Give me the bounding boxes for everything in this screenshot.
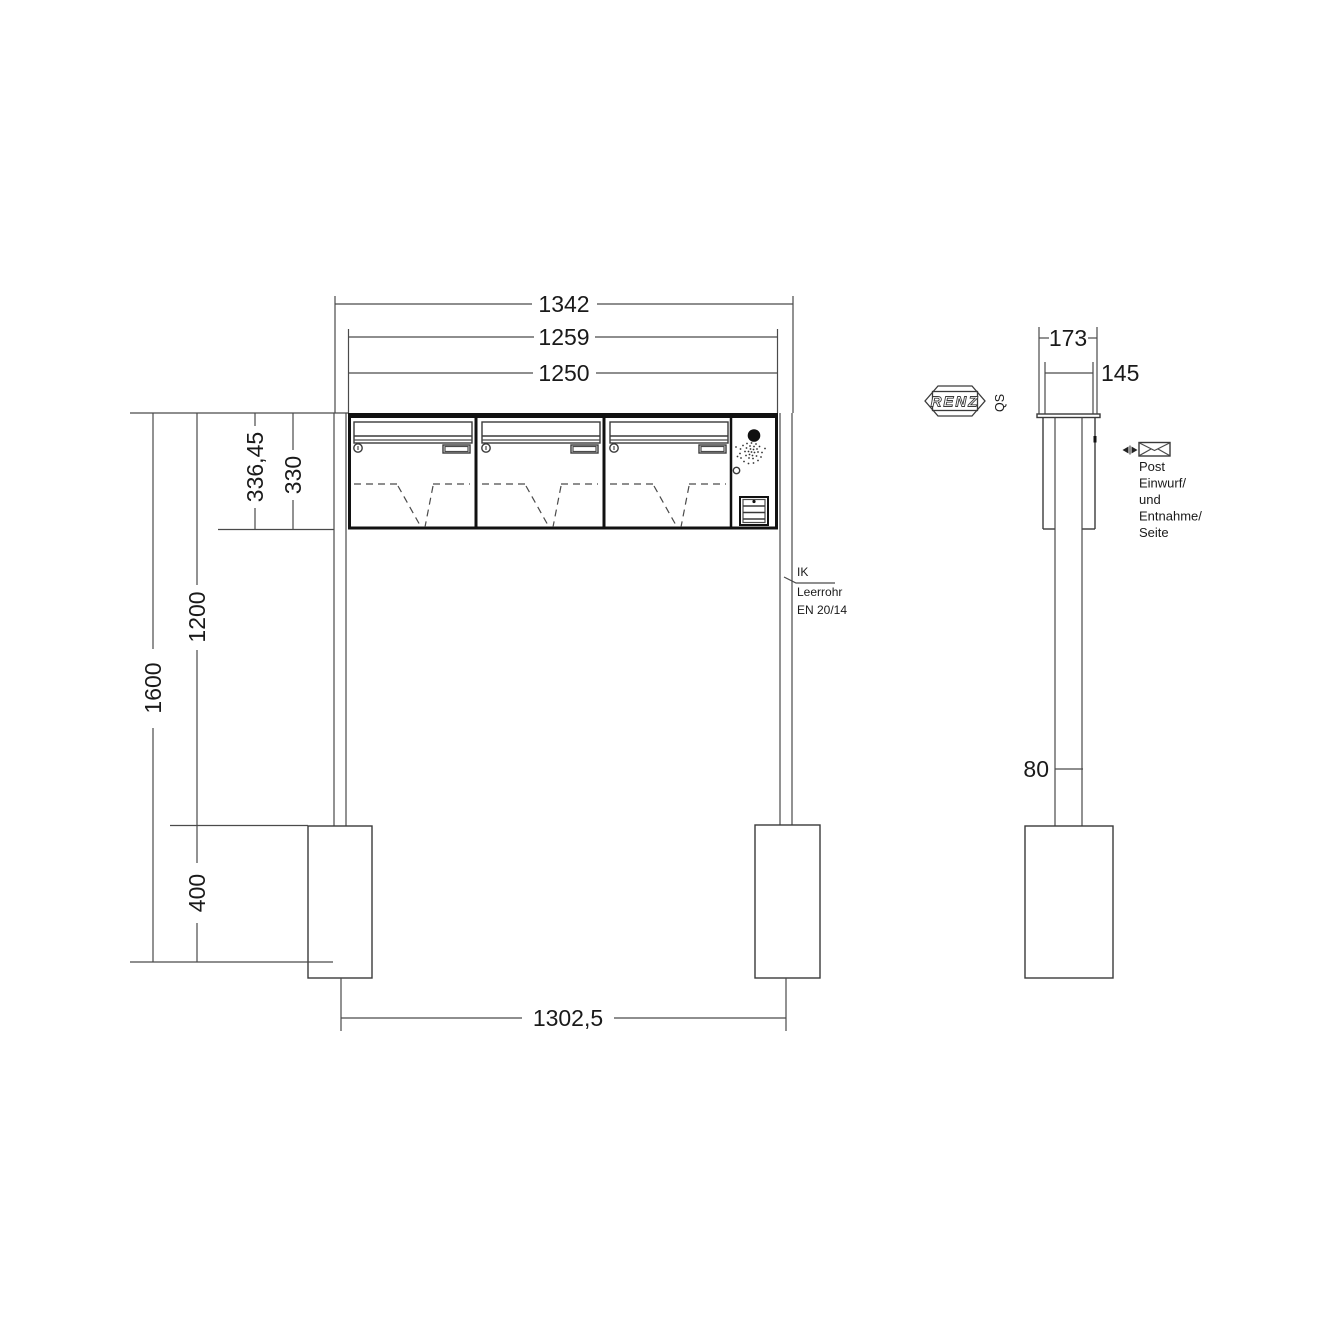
hidden-chute-outline: [482, 484, 598, 527]
dim-mount-height: 1200: [184, 591, 210, 642]
brand-mark: RENZ QS: [925, 386, 1007, 416]
ik-label: IK: [797, 565, 808, 579]
dim-post-depth: 80: [1023, 756, 1049, 782]
right-foundation-block: [755, 825, 820, 978]
dim-box-depth: 145: [1101, 360, 1139, 386]
dim-overall-width: 1342: [538, 291, 589, 317]
dim-post-spacing: 1302,5: [533, 1005, 603, 1031]
drawing-canvas: IK Leerrohr EN 20/14 1342 1259 1250: [0, 0, 1320, 1320]
conduit-annotation: IK Leerrohr EN 20/14: [784, 565, 847, 617]
service-lock-icon: [733, 467, 739, 473]
right-post-front: [780, 413, 792, 825]
envelope-icon: [1139, 443, 1170, 457]
standard-label: EN 20/14: [797, 603, 847, 617]
hidden-chute-outline: [610, 484, 726, 527]
hidden-chute-outline: [354, 484, 470, 527]
dim-box-width: 1250: [538, 360, 589, 386]
mailbox-side: [1037, 414, 1100, 529]
compartment-2: [482, 422, 600, 527]
dim-foundation-depth: 400: [184, 874, 210, 912]
side-top-dimensions: 173 145: [1039, 325, 1139, 414]
conduit-label: Leerrohr: [797, 585, 842, 599]
bell-button-icon: [752, 500, 755, 503]
camera-icon: [748, 429, 761, 442]
front-top-dimensions: 1342 1259 1250: [335, 291, 793, 413]
mailbox-front: [348, 414, 778, 528]
view-direction-icon: [1123, 446, 1138, 455]
top-cap: [1037, 414, 1100, 418]
front-view: IK Leerrohr EN 20/14 1342 1259 1250: [130, 291, 847, 1031]
call-button-unit: [740, 497, 768, 525]
note-line-5: Seite: [1139, 525, 1169, 540]
compartment-1: [354, 422, 472, 527]
dim-box-height-outer: 336,45: [242, 432, 268, 502]
left-post-front: [334, 413, 346, 826]
post-side: 80: [1023, 418, 1083, 827]
lock-side-icon: [1094, 436, 1097, 443]
renz-logo-text: RENZ: [931, 394, 980, 411]
note-line-1: Post: [1139, 459, 1165, 474]
speaker-grille-icon: [735, 442, 766, 464]
dim-total-height: 1600: [140, 662, 166, 713]
note-line-3: und: [1139, 492, 1161, 507]
compartment-3: [610, 422, 728, 527]
dim-overall-depth: 173: [1049, 325, 1087, 351]
foundation-block-side: [1025, 826, 1113, 978]
note-line-2: Einwurf/: [1139, 476, 1186, 491]
technical-drawing-page: IK Leerrohr EN 20/14 1342 1259 1250: [0, 0, 1320, 1320]
left-foundation-block: [308, 826, 372, 978]
dim-body-width: 1259: [538, 324, 589, 350]
post-access-note: Post Einwurf/ und Entnahme/ Seite: [1123, 443, 1203, 541]
qs-label: QS: [993, 394, 1007, 412]
note-line-4: Entnahme/: [1139, 509, 1202, 524]
dim-box-height: 330: [280, 456, 306, 494]
intercom-panel: [733, 429, 768, 525]
front-bottom-dimension: 1302,5: [341, 978, 786, 1031]
side-view: 173 145 80: [1023, 325, 1202, 978]
